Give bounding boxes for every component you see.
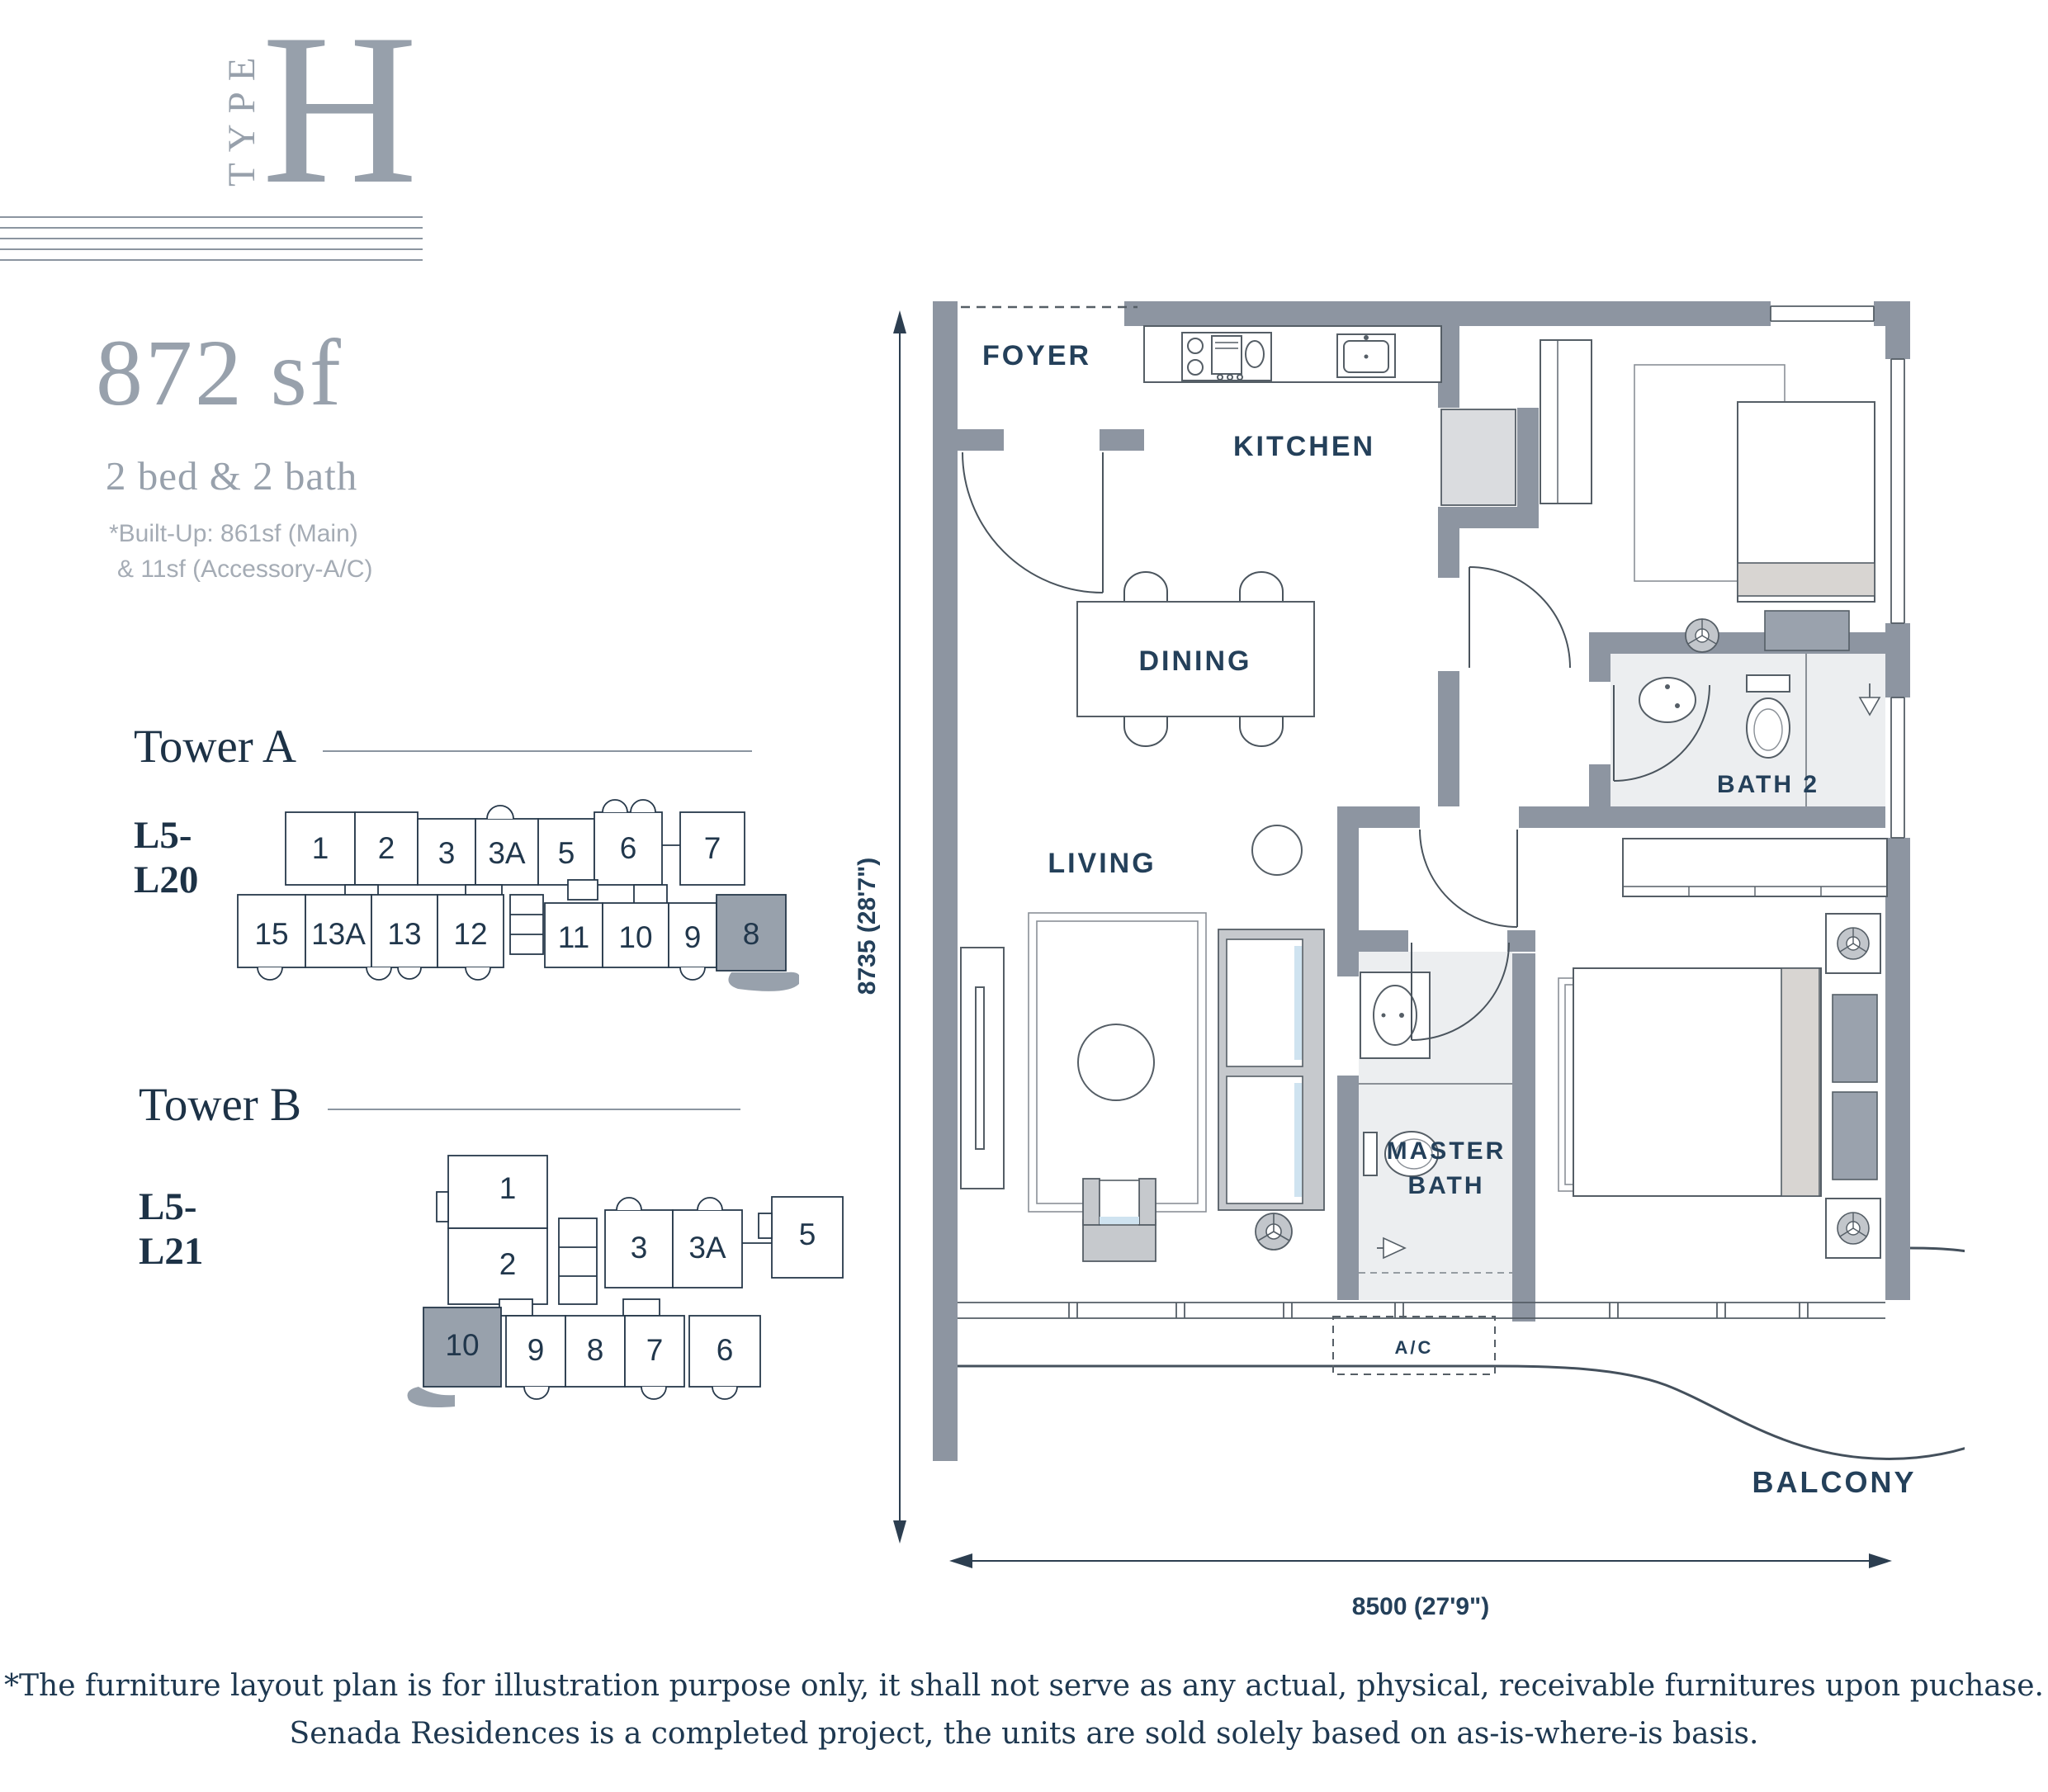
svg-text:5: 5	[799, 1218, 816, 1251]
kitchen-label: KITCHEN	[1233, 431, 1375, 462]
width-dimension-label: 8500 (27'9")	[1352, 1593, 1489, 1620]
svg-text:1: 1	[499, 1171, 517, 1205]
svg-text:12: 12	[453, 917, 487, 951]
master-bath-label-1: MASTER	[1387, 1137, 1506, 1165]
tower-a-floorplate: 1 2 3 3A 5 6 7 15 13A 13 12 11 10 9 8	[221, 797, 799, 991]
ac-label: A/C	[1395, 1337, 1434, 1358]
svg-text:2: 2	[499, 1247, 517, 1281]
builtup-note: *Built-Up: 861sf (Main) & 11sf (Accessor…	[109, 517, 373, 587]
tower-b-rule	[328, 1109, 740, 1110]
master-bath-sink-icon	[1360, 972, 1430, 1058]
floor-lamp	[1252, 825, 1302, 875]
type-h-logo: TYPE H	[223, 18, 418, 193]
bath2-sink-icon	[1639, 678, 1696, 722]
living-label: LIVING	[1048, 848, 1156, 879]
disclaimer-line2: Senada Residences is a completed project…	[0, 1717, 2048, 1751]
svg-text:9: 9	[684, 920, 702, 954]
tower-a-units	[238, 800, 799, 991]
unit-config: 2 bed & 2 bath	[106, 452, 357, 499]
svg-text:5: 5	[558, 836, 575, 870]
master-wardrobe	[1623, 839, 1887, 896]
ceiling-fan-icon	[1256, 1213, 1292, 1250]
svg-text:3A: 3A	[688, 1231, 726, 1265]
dining-label: DINING	[1139, 645, 1252, 677]
living-furniture	[961, 825, 1324, 1261]
svg-text:1: 1	[312, 831, 329, 865]
disclaimer-line1: *The furniture layout plan is for illust…	[0, 1669, 2048, 1703]
svg-text:15: 15	[254, 917, 288, 951]
svg-text:7: 7	[704, 831, 721, 865]
tower-b-unit10-balcony	[408, 1387, 456, 1407]
svg-text:13: 13	[387, 917, 421, 951]
master-bedroom-furniture	[1558, 839, 1887, 1258]
tower-b-levels: L5- L21	[139, 1185, 203, 1274]
tower-b-floorplate: 1 2 3 3A 5 10 9 8 7 6	[376, 1144, 854, 1425]
page: TYPE H 872 sf 2 bed & 2 bath *Built-Up: …	[0, 0, 2048, 1792]
svg-text:10: 10	[618, 920, 652, 954]
bedside-cabinet	[1833, 995, 1877, 1082]
svg-text:2: 2	[378, 831, 395, 865]
svg-text:11: 11	[558, 920, 589, 954]
svg-text:8: 8	[587, 1333, 604, 1367]
master-bath-label-2: BATH	[1407, 1172, 1484, 1199]
svg-text:3: 3	[631, 1231, 648, 1265]
entrance-door	[963, 452, 1103, 593]
nightstand-fan-icon	[1826, 914, 1880, 973]
kitchen-counter	[1144, 326, 1516, 505]
foyer-label: FOYER	[982, 340, 1091, 371]
svg-text:3: 3	[438, 836, 456, 870]
divider-lines	[0, 216, 423, 270]
builtup-line1: *Built-Up: 861sf (Main)	[109, 517, 373, 552]
tower-a-levels: L5- L20	[134, 814, 198, 902]
nightstand-fan-icon	[1826, 1199, 1880, 1258]
tower-a-heading: Tower A	[134, 720, 752, 773]
logo-type-label: TYPE	[223, 40, 262, 187]
sofa	[1218, 929, 1324, 1210]
bedside-cabinet	[1833, 1092, 1877, 1180]
unit-area: 872 sf	[96, 319, 343, 428]
svg-text:6: 6	[620, 831, 637, 865]
bedroom2-bed	[1738, 402, 1875, 650]
coffee-table	[1078, 1024, 1154, 1100]
tower-a-title: Tower A	[134, 720, 296, 773]
armchair	[1083, 1179, 1156, 1261]
svg-text:13A: 13A	[311, 917, 366, 951]
floor-plan: 8735 (28'7") 8500 (27'9") FOYER KITCHEN …	[834, 289, 1965, 1692]
svg-text:9: 9	[527, 1333, 545, 1367]
bath2-label: BATH 2	[1717, 771, 1819, 798]
dimension-height: 8735 (28'7")	[854, 310, 906, 1544]
svg-text:10: 10	[445, 1328, 479, 1362]
svg-text:6: 6	[717, 1333, 734, 1367]
svg-text:3A: 3A	[488, 836, 526, 870]
master-bed	[1573, 968, 1821, 1196]
tower-b-units	[408, 1156, 844, 1407]
bedroom2-door	[1469, 567, 1570, 668]
tower-a-rule	[323, 750, 752, 752]
height-dimension-label: 8735 (28'7")	[854, 858, 881, 995]
fridge	[1441, 409, 1516, 505]
builtup-line2: & 11sf (Accessory-A/C)	[109, 552, 373, 588]
balcony-label: BALCONY	[1752, 1465, 1917, 1499]
tower-b-title: Tower B	[139, 1078, 301, 1132]
svg-text:8: 8	[743, 917, 760, 951]
master-bedroom-door	[1420, 830, 1517, 927]
logo-letter: H	[262, 25, 418, 193]
bedroom2-fan-icon	[1686, 619, 1719, 652]
tower-b-heading: Tower B	[139, 1078, 740, 1132]
svg-text:7: 7	[646, 1333, 664, 1367]
bedroom2-furniture	[1540, 340, 1875, 652]
tv-console	[961, 948, 1004, 1189]
bath2-toilet-icon	[1747, 675, 1790, 758]
sink-icon	[1337, 334, 1395, 377]
dimension-width: 8500 (27'9")	[949, 1553, 1892, 1620]
bedroom2-wardrobe	[1540, 340, 1592, 504]
stove-icon	[1182, 333, 1271, 381]
tower-a-unit8-balcony	[728, 972, 799, 991]
